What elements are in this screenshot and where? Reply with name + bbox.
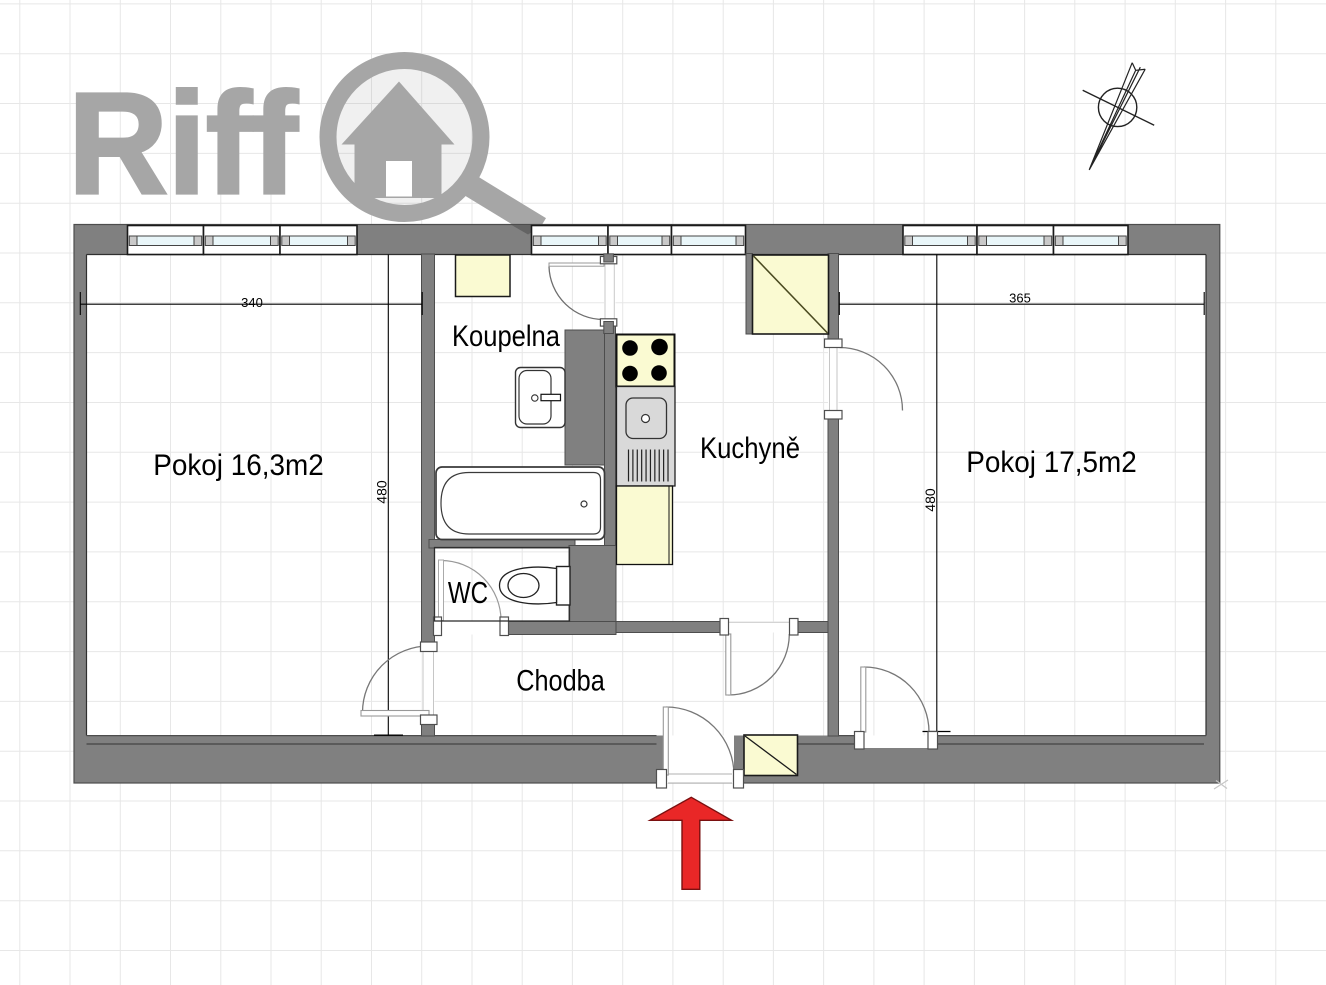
svg-text:Kuchyně: Kuchyně (700, 431, 800, 464)
svg-text:Pokoj 17,5m2: Pokoj 17,5m2 (966, 446, 1137, 479)
svg-text:Pokoj 16,3m2: Pokoj 16,3m2 (153, 449, 324, 482)
svg-text:Riff: Riff (68, 62, 299, 223)
svg-text:480: 480 (374, 480, 390, 504)
svg-text:Chodba: Chodba (516, 663, 605, 697)
svg-text:340: 340 (241, 295, 263, 310)
svg-text:Koupelna: Koupelna (452, 319, 560, 352)
svg-text:WC: WC (448, 575, 488, 610)
svg-text:480: 480 (922, 488, 938, 512)
svg-text:365: 365 (1009, 291, 1031, 306)
